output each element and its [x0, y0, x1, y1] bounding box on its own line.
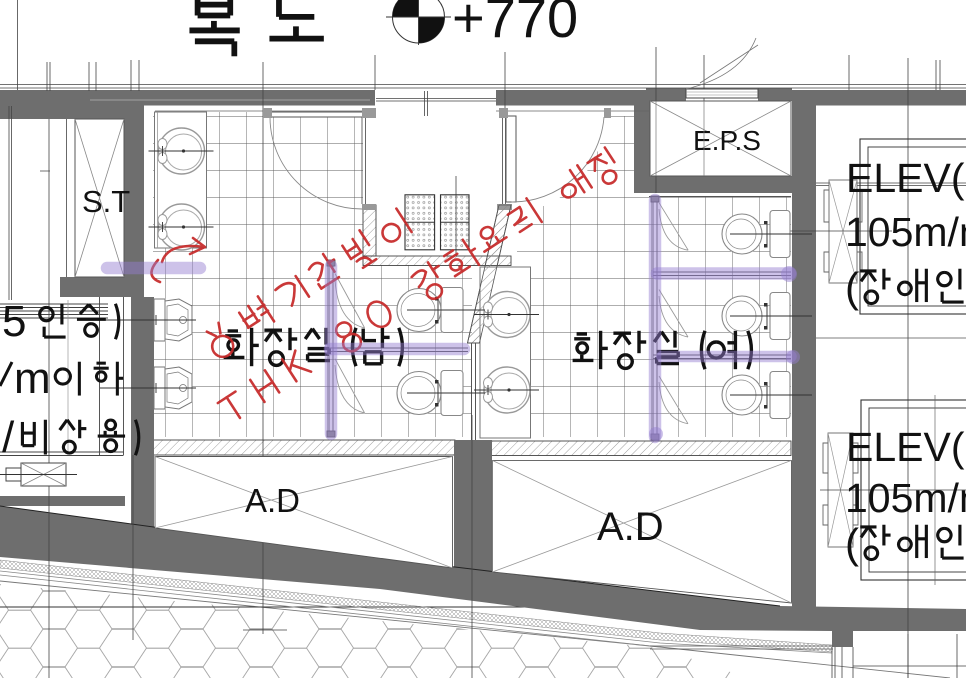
- svg-text:A.D: A.D: [245, 482, 300, 519]
- svg-text:5: 5: [2, 297, 26, 346]
- svg-text:E.P.S: E.P.S: [693, 125, 761, 156]
- svg-text:(: (: [845, 520, 859, 567]
- svg-text:m: m: [14, 354, 51, 403]
- svg-text:105m/n: 105m/n: [845, 209, 966, 255]
- svg-text:/: /: [2, 413, 15, 462]
- svg-text:ELEV(18: ELEV(18: [846, 424, 966, 470]
- svg-text:+770: +770: [452, 0, 578, 49]
- svg-text:S.T: S.T: [82, 184, 130, 219]
- svg-text:ELEV(18: ELEV(18: [846, 155, 966, 201]
- svg-text:(: (: [845, 264, 859, 311]
- svg-text:105m/n: 105m/n: [845, 475, 966, 521]
- svg-text:A.D: A.D: [597, 505, 664, 549]
